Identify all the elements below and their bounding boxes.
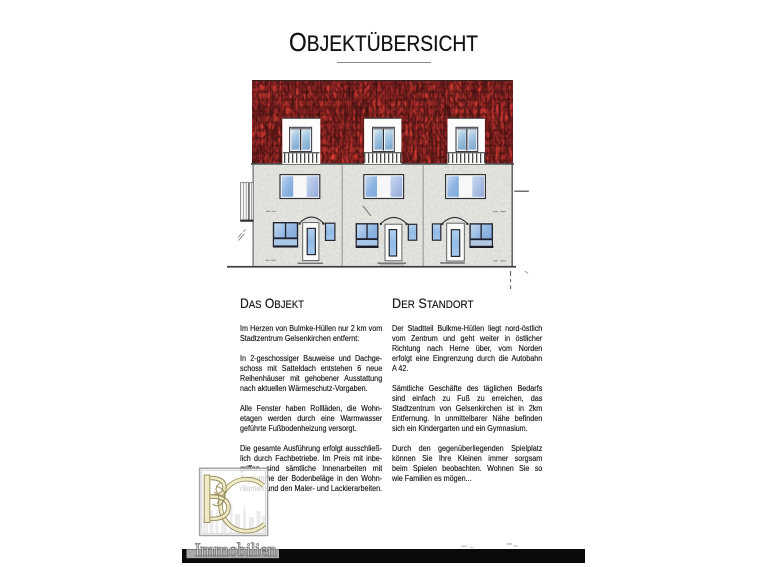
svg-text:Immobilien: Immobilien: [195, 540, 278, 561]
